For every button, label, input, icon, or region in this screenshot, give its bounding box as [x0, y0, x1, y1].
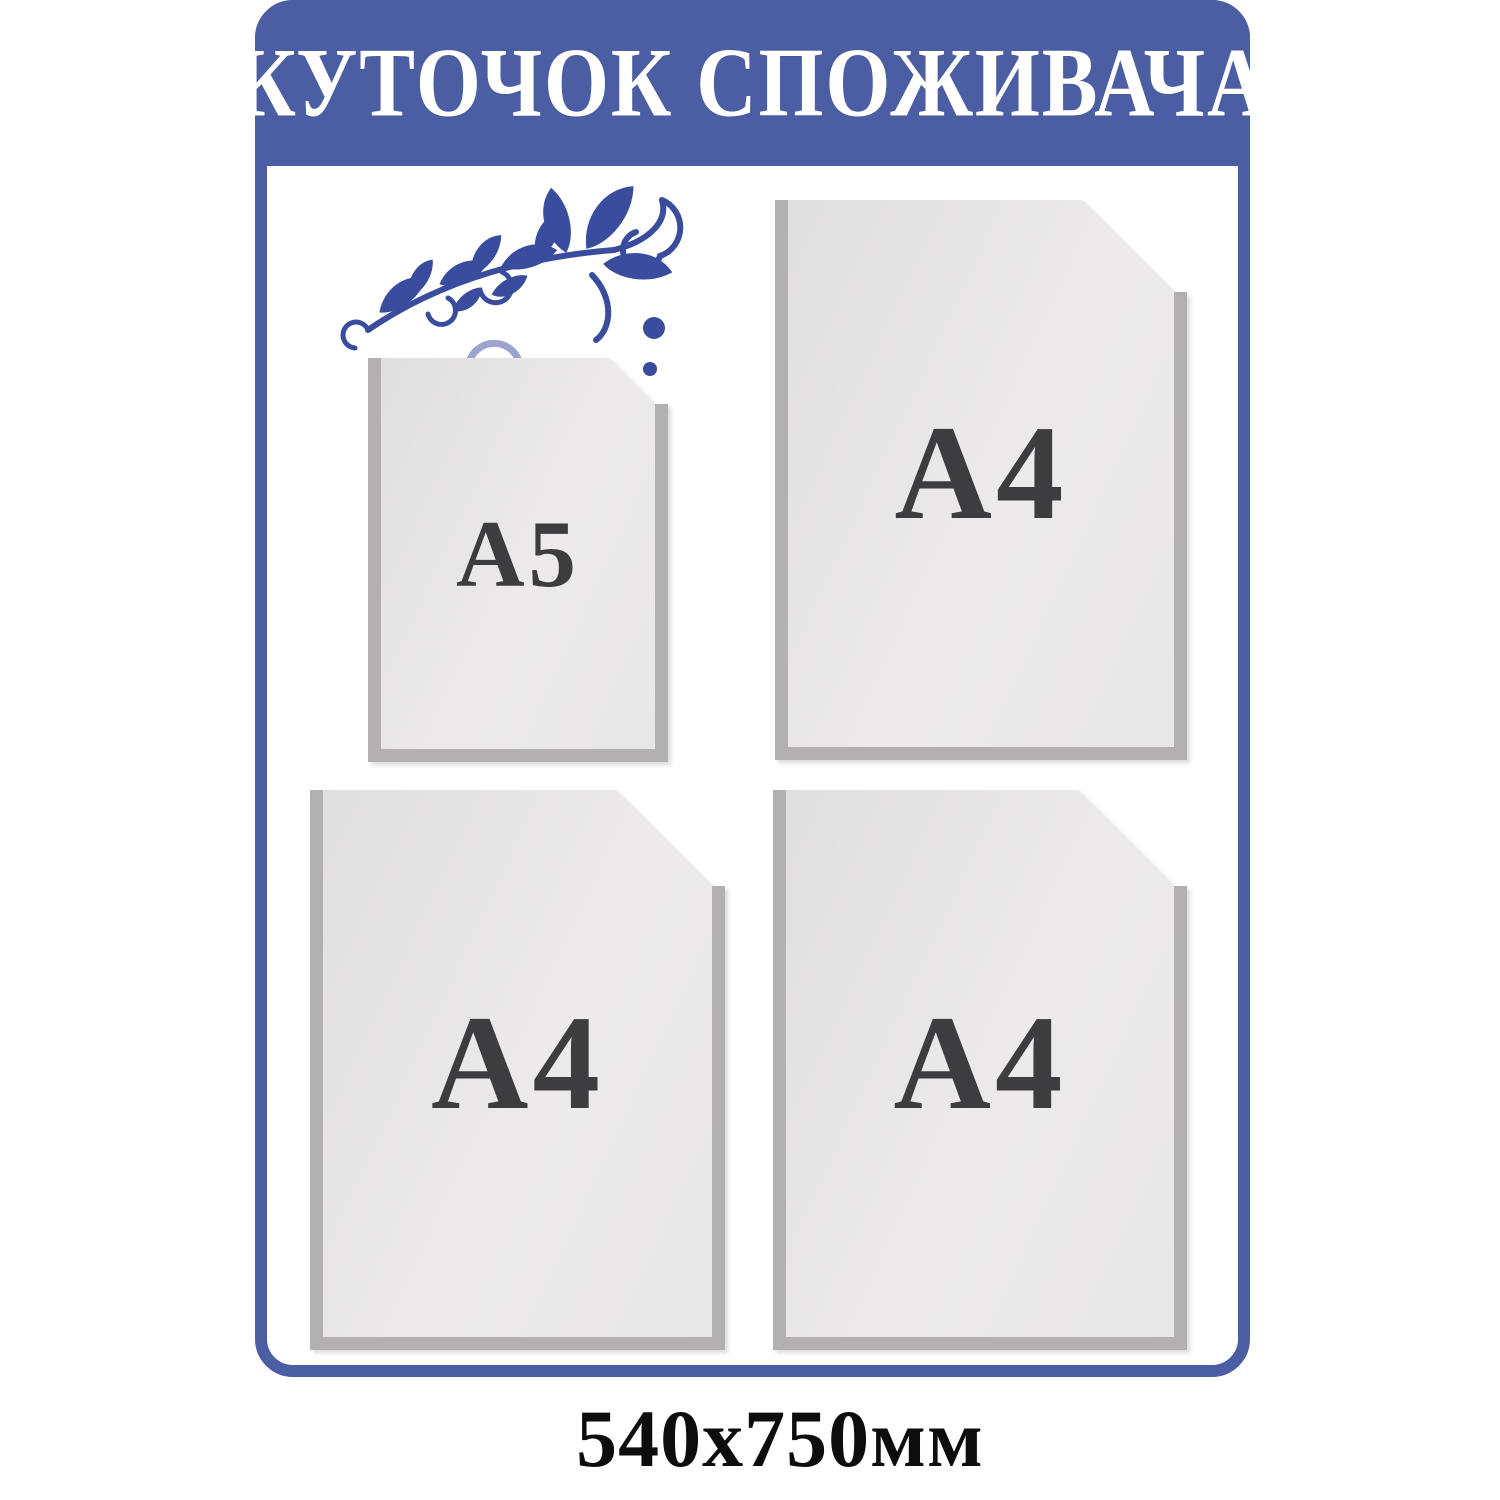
pocket-fill [323, 790, 712, 1337]
pocket-border-right [1174, 886, 1187, 1350]
pocket-border-bottom [310, 1337, 725, 1350]
a5-pocket: A5 [368, 358, 668, 762]
a4-pocket-bottom-left: A4 [310, 790, 725, 1350]
pocket-border-right [655, 404, 668, 762]
size-caption: 540x750мм [60, 1392, 1500, 1486]
pocket-border-bottom [775, 747, 1187, 760]
pocket-border-left [775, 200, 788, 760]
pocket-border-right [1174, 292, 1187, 760]
pocket-border-right [712, 886, 725, 1350]
pocket-fill [788, 200, 1174, 747]
a4-pocket-bottom-right: A4 [773, 790, 1187, 1350]
consumer-corner-board: КУТОЧОК СПОЖИВАЧА [255, 0, 1250, 1377]
product-image: КУТОЧОК СПОЖИВАЧА [0, 0, 1500, 1500]
pocket-border-left [773, 790, 786, 1350]
board-header: КУТОЧОК СПОЖИВАЧА [255, 0, 1250, 166]
pocket-fill [381, 358, 655, 749]
pocket-fill [786, 790, 1174, 1337]
a4-pocket-top-right: A4 [775, 200, 1187, 760]
pocket-border-bottom [368, 749, 668, 762]
pocket-border-left [310, 790, 323, 1350]
pocket-border-bottom [773, 1337, 1187, 1350]
board-title: КУТОЧОК СПОЖИВАЧА [255, 26, 1250, 139]
pocket-border-left [368, 358, 381, 762]
